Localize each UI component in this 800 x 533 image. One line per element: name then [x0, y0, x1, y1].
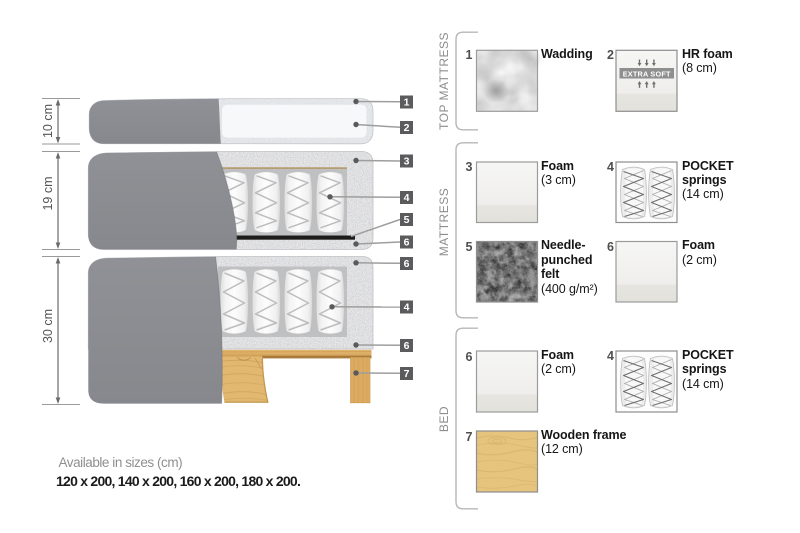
svg-text:30 cm: 30 cm	[41, 309, 55, 343]
svg-text:4: 4	[404, 192, 410, 204]
svg-text:5: 5	[404, 214, 410, 226]
svg-text:7: 7	[404, 368, 410, 380]
svg-text:19 cm: 19 cm	[41, 176, 55, 210]
svg-text:1: 1	[404, 96, 410, 108]
svg-text:10 cm: 10 cm	[41, 104, 55, 138]
svg-text:EXTRA SOFT: EXTRA SOFT	[623, 69, 671, 78]
svg-text:3: 3	[404, 155, 410, 167]
svg-text:6: 6	[404, 340, 410, 352]
svg-text:2: 2	[404, 122, 410, 134]
svg-text:4: 4	[404, 301, 410, 313]
svg-text:6: 6	[404, 258, 410, 270]
svg-text:6: 6	[404, 236, 410, 248]
